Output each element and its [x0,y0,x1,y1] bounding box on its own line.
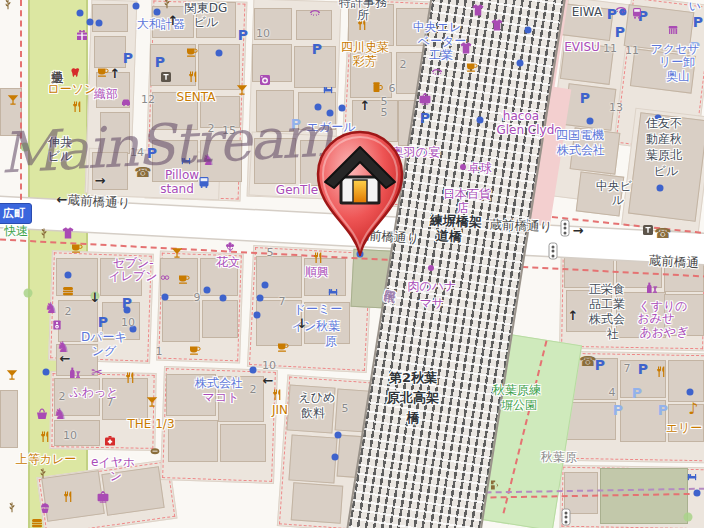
place-name-label: マコト [203,391,240,403]
building [162,300,200,342]
bottle-icon [646,282,658,294]
place-name-label: 花文 [216,256,240,268]
eye-icon [615,5,628,16]
atm-icon [642,224,654,236]
parking-icon: P [693,14,703,30]
atm-icon [160,71,172,83]
bus-icon [198,176,210,188]
burger-icon [62,285,74,297]
scissors-icon: ✂ [91,365,103,379]
eye-icon [431,67,444,78]
shopdot-icon [460,164,466,170]
cocktail-icon [6,369,18,381]
home-location-pin[interactable] [312,130,408,256]
oval-icon [149,447,162,457]
place-name-label: 店 [457,202,469,214]
branch-icon [3,0,14,11]
place-name-label: EIWA [572,6,603,18]
eye-icon [309,8,322,19]
burger-icon [31,517,43,528]
oneway-arrow: ← [57,192,68,207]
place-name-label: 四川史菜 [341,41,389,53]
place-name-label: 肉のハナ [408,280,457,292]
dot-icon [332,454,339,461]
building [92,4,128,32]
bed-icon [180,155,193,165]
place-name-label: SENTA [177,91,216,103]
flower-icon [224,241,236,254]
building [254,138,296,184]
place-name-label: 奥山 [666,70,690,82]
house-number: 7 [107,396,114,409]
place-name-label: イレブン [108,270,157,282]
bag-icon-icon [43,369,50,376]
fork-icon [71,101,83,113]
branch-icon [38,467,49,480]
dot-icon [257,295,264,302]
place-name-label: 伸共 [48,136,72,148]
place-name-label: エリー [666,422,703,434]
place-name-label: い [689,0,701,12]
place-name-label: 工業 [429,49,453,61]
dot-icon [587,118,594,125]
parking-icon: P [638,361,648,377]
dot-icon [315,104,322,111]
tree-icon [21,143,30,152]
horse-icon: ♞ [44,301,57,316]
dot-icon [65,272,72,279]
place-name-label: JIN [272,404,288,416]
house-number: 7 [624,362,631,375]
fork-icon [271,389,283,401]
place-name-label: ベーター [418,35,467,47]
place-name-label: ン [110,470,122,482]
dot-icon [204,287,211,294]
house-number: 2 [59,390,66,403]
oneway-arrow: ↓ [90,290,101,305]
dot-icon [694,490,701,497]
place-name-label: 日本百貨 [443,188,491,200]
place-name-label: 原 [325,335,337,347]
house-number: 2 [208,122,215,135]
place-name-label: Pillow [165,169,199,181]
oneway-arrow: ↓ [297,316,308,331]
place-name-label: 住友不 [646,117,682,129]
parking-light-icon: P [613,402,623,418]
home-pin-graphic [312,130,408,256]
horse-icon: ♞ [201,153,214,168]
parking-icon: P [238,27,248,43]
place-name-label: hacoa [503,110,539,122]
house-number: 14 [130,146,144,159]
place-name-label: 関東DG [185,2,228,14]
house-number: 10 [256,27,270,40]
bed-icon [322,84,335,94]
place-name-label: ング [92,345,117,357]
cup-icon [189,344,201,356]
station-name-badge[interactable]: 広町 [0,203,32,224]
phone-icon: ☎ [579,354,596,368]
glasses-icon [159,274,172,283]
cup-icon [178,273,190,285]
place-name-label: 特許事務 [339,0,387,8]
signal-icon [549,243,558,260]
beer-icon [372,81,384,93]
place-name-label: Glen Clyde [496,124,561,136]
place-name-label: ビル [194,16,219,28]
house-number: 7 [279,295,286,308]
oneway-arrow: ↑ [360,98,371,113]
tooth-icon [71,68,82,79]
train-icon [631,7,643,19]
signal-icon [561,220,570,237]
building [94,36,126,68]
place-name-label: 上等カレー [16,453,77,465]
house-number: 5 [342,402,349,415]
dot-icon [216,50,223,57]
oneway-arrow: ← [263,373,274,388]
cupcake-icon [39,502,51,514]
building [54,420,100,446]
cup-icon [186,46,198,58]
bridge-name-label: 練塀橋架 [430,214,482,229]
cup-icon [71,242,83,254]
tshirt-icon [472,4,485,17]
place-name-label: ローソン [48,83,97,95]
place-name-label: 四国電機 [556,129,604,141]
signal-icon [562,509,571,526]
house-number: 2 [65,305,72,318]
place-name-label: 秋葉原練 [493,384,541,396]
building [220,424,266,462]
oneway-arrow: ← [60,351,71,366]
house-number: 5 [381,106,388,119]
basket-icon [36,408,48,420]
place-name-label: マサ [420,297,445,309]
fork-icon [187,71,199,83]
car-icon [120,97,133,108]
place-name-label: 織部 [94,88,118,100]
dot-icon [262,282,269,289]
dot-icon [133,3,140,10]
bridge-name-label: 橋 [407,411,420,424]
fork-icon [62,491,74,503]
dot-icon [220,295,227,302]
parking-icon: P [615,24,625,40]
tv-icon [97,491,110,504]
tree-icon [24,289,33,298]
dot-icon [335,432,342,439]
house-number: 4 [609,386,616,399]
oneway-arrow: ↑ [110,66,121,81]
place-name-label: THE 1/3 [127,418,174,430]
place-name-label: ビル [654,165,679,177]
fork-icon [39,431,51,443]
place-name-label: 彩芳 [353,55,377,67]
house-number: 15 [222,124,236,137]
place-name-label: 社 [607,328,619,340]
street-name-label: 中央通り [51,61,64,75]
place-name-label: あおやぎ [639,326,688,338]
place-name-label: 飲料 [301,407,325,419]
place-name-label: ビル [48,150,73,162]
parking-icon: P [155,54,165,70]
bag-icon-icon [517,60,524,67]
parking-icon: P [420,110,430,126]
phone-icon: ☎ [134,165,151,179]
cup-icon [97,66,109,78]
bag-icon-icon [477,117,484,124]
dot-icon [254,312,261,319]
cocktail-icon [236,84,248,96]
house-number: 2 [250,383,257,396]
dot-icon [250,367,257,374]
house-number: 11 [625,44,639,57]
place-name-label: 正栄食 [589,283,625,295]
place-name-label: えひめ [299,391,336,403]
place-name-label: ドーミー [294,303,343,315]
dot-icon [87,19,94,26]
bridge-name-label: 道橋 [436,229,462,243]
place-name-label: Dパーキ [81,331,127,343]
parking-light-icon: P [291,116,301,132]
place-name-label: stand [160,183,194,195]
building [252,44,292,82]
house-number: 13 [609,101,623,114]
dot-icon [154,9,161,16]
cocktail-icon [171,247,183,259]
building [256,256,302,298]
building [202,300,238,338]
fountain-icon [489,479,501,491]
parking-light-icon: P [658,402,668,418]
house-number: 1 [156,345,163,358]
bridge-name-label: 第2秋葉 [389,371,437,384]
house-number: 10 [121,316,135,329]
branch-icon [7,501,18,514]
house-number: 10 [262,359,276,372]
place-name-label: アクセサ [650,43,699,55]
tshirt-icon [62,227,75,240]
tv-icon [419,93,432,106]
cocktail-icon [146,396,158,408]
oneway-arrow: → [95,173,106,188]
oneway-arrow: ↑ [168,13,179,28]
building [0,390,18,448]
tree-icon [684,513,693,522]
place-name-label: 葉原北 [646,149,682,161]
bottle-icon [69,367,81,379]
place-name-label: 株式会社 [557,144,605,156]
comb-icon [667,24,679,36]
building [291,482,344,523]
dot-icon [687,389,694,396]
street-name-label: 蔵前橋通 [649,254,700,269]
building [566,402,616,440]
house-number: 9 [194,291,201,304]
place-name-label: eイヤホ [91,456,135,468]
dot-icon [657,185,664,192]
fork-icon [655,366,667,378]
place-name-label: 株式会 [589,313,625,325]
map-canvas[interactable]: 広町 中央通り蔵前橋通り蔵前橋通り蔵前橋通り蔵前橋通関東DGビル大和計器特許事務… [0,0,704,528]
dot-icon [77,10,84,17]
place-name-label: EVISU [564,41,600,53]
horse-icon: ♞ [53,407,66,422]
firstaid-icon [104,435,116,447]
house-number: 5 [267,246,274,259]
house-number: 6 [389,82,396,95]
place-name-label: リー卸 [659,56,695,68]
place-name-label: 順興 [305,266,329,278]
place-name-label: 所 [357,9,369,21]
place-name-label: 塀公園 [501,399,537,411]
place-name-label: おみせ [638,312,675,324]
bed-icon [327,286,340,296]
oneway-arrow: → [573,223,584,238]
place-name-label: 中央エレ [413,21,462,33]
dot-icon [124,307,131,314]
dot-icon [96,20,103,27]
place-name-label: 秋葉原 [541,451,577,463]
parking-icon: P [580,90,590,106]
street-name-label: 蔵前橋通り [489,219,552,234]
place-name-label: 卓球 [468,162,492,174]
house-number: 11 [603,42,617,55]
route-line [20,0,22,210]
branch-icon [39,227,50,240]
place-name-label: 動産秋 [646,133,682,145]
building [168,420,218,462]
shopdot-icon [428,265,434,271]
dot-icon [162,294,169,301]
fork-icon [124,372,136,384]
house-number: 2 [400,58,407,71]
phone-icon: ☎ [654,226,671,240]
dot-icon [339,105,346,112]
parking-icon: P [147,145,157,161]
wash-icon [259,74,271,86]
street-name-label: 蔵前橋通り [67,194,130,210]
house-number: 12 [141,93,155,106]
gift-icon [76,29,88,41]
speaker-icon [52,319,63,331]
branch-icon [162,0,173,10]
cup-icon [277,341,289,353]
building [256,90,294,132]
tshirt-icon [491,19,504,32]
place-name-label: 品工業 [589,298,625,310]
place-name-label: ル [612,194,624,206]
place-name-label: 株式会社 [195,377,243,389]
cocktail-icon [7,94,19,106]
dot-icon [327,110,334,117]
house-number: 10 [63,429,77,442]
note-icon: ♪ [688,401,698,417]
place-name-label: 中央ビ [596,180,632,192]
building [668,360,704,402]
bed-icon [686,471,699,481]
parking-icon: P [312,41,322,57]
building [100,112,130,154]
place-name-label: セブン- [112,257,153,269]
bag-icon-icon [525,27,532,34]
bridge-name-label: 原北高架 [387,391,439,404]
parking-icon: P [98,314,108,330]
building [288,434,337,483]
place-name-label: 快速 [4,225,28,237]
oneway-arrow: ↑ [568,308,579,323]
cup-icon [466,61,478,73]
parking-icon: P [123,50,133,66]
parking-light-icon: P [632,385,642,401]
